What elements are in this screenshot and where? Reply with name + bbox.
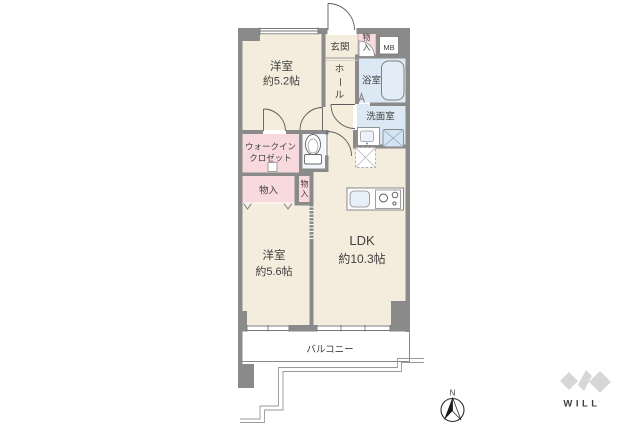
kitchen-counter-icon (347, 188, 404, 210)
stove-icon (376, 190, 401, 209)
wall-left-balcony-pillar (238, 364, 254, 388)
wall-toilet-left (299, 130, 303, 172)
wall-wic-bottom (238, 173, 303, 177)
compass-north-label: N (450, 389, 456, 398)
kitchen-sink-icon (350, 191, 370, 207)
closet-pillar-notch (268, 163, 277, 172)
wall-toilet-bottom (299, 169, 329, 173)
wall-left-lower-pillar (238, 311, 247, 325)
window-bottom-room2 (247, 325, 289, 332)
western-room-1-size: 約5.2帖 (263, 74, 300, 88)
wall-bathroom-bottom (370, 103, 406, 107)
vanity-sink-icon (358, 128, 380, 146)
ldk-label: LDK (349, 233, 375, 248)
washroom-label: 洗面室 (366, 111, 395, 123)
ldk-size: 約10.3帖 (338, 251, 385, 266)
toilet-icon (305, 135, 322, 165)
hall-label-char1: ホ (335, 64, 345, 75)
wall-room2-ldk (310, 172, 314, 327)
hall-label-char3: ル (335, 90, 345, 101)
wic-label-line1: ウォークイン (245, 142, 296, 152)
western-room-2-size: 約5.6帖 (255, 264, 292, 278)
wall-wic-top-a (238, 130, 263, 134)
brand-logo: WILL (560, 370, 611, 410)
wall-hall-left (322, 34, 326, 107)
wall-hall-right (355, 55, 359, 105)
brand-logo-text: WILL (563, 399, 600, 410)
entrance-label: 玄関 (330, 41, 349, 53)
wall-wic-top-b (286, 130, 326, 134)
wall-bottom-right-pillar (391, 301, 406, 326)
compass-icon: N (441, 389, 464, 422)
western-room-1-label: 洋室 (270, 59, 293, 73)
washing-machine-icon (383, 130, 404, 148)
storage-narrow-label-char2: 入 (301, 190, 309, 199)
entrance-door-swing (328, 4, 355, 31)
logo-diamond-left (560, 372, 578, 390)
washroom-door-threshold (353, 104, 357, 130)
hall-label-char2: ー (334, 77, 345, 87)
window-bottom-ldk (317, 325, 390, 332)
refrigerator-space-icon (356, 148, 376, 168)
wall-right (406, 28, 411, 332)
bathroom-label: 浴室 (362, 75, 381, 87)
western-room-2-label: 洋室 (263, 248, 286, 262)
bathtub-icon (382, 61, 405, 100)
meter-box-label: MB (383, 43, 394, 52)
western-room-2-floor (243, 204, 310, 326)
storage-entrance-label-char2: 入 (363, 43, 371, 52)
entrance-opening (328, 27, 357, 35)
wic-label-line2: クロゼット (249, 153, 292, 163)
storage-hall-label: 物入 (259, 185, 279, 197)
storage-narrow-label-char1: 物 (301, 179, 309, 189)
lower-structure-outline-inner (240, 363, 424, 423)
window-top (260, 28, 318, 35)
logo-diamond-right (589, 371, 611, 393)
storage-entrance-label-char1: 物 (363, 32, 371, 42)
logo-kite-middle (578, 370, 592, 391)
balcony-label: バルコニー (306, 345, 353, 356)
floor-plan: 洋室 約5.2帖 玄関 物 入 MB ホ ー ル 浴室 洗面室 ウォークイン ク… (0, 0, 640, 427)
wall-storage-divider (295, 176, 300, 202)
